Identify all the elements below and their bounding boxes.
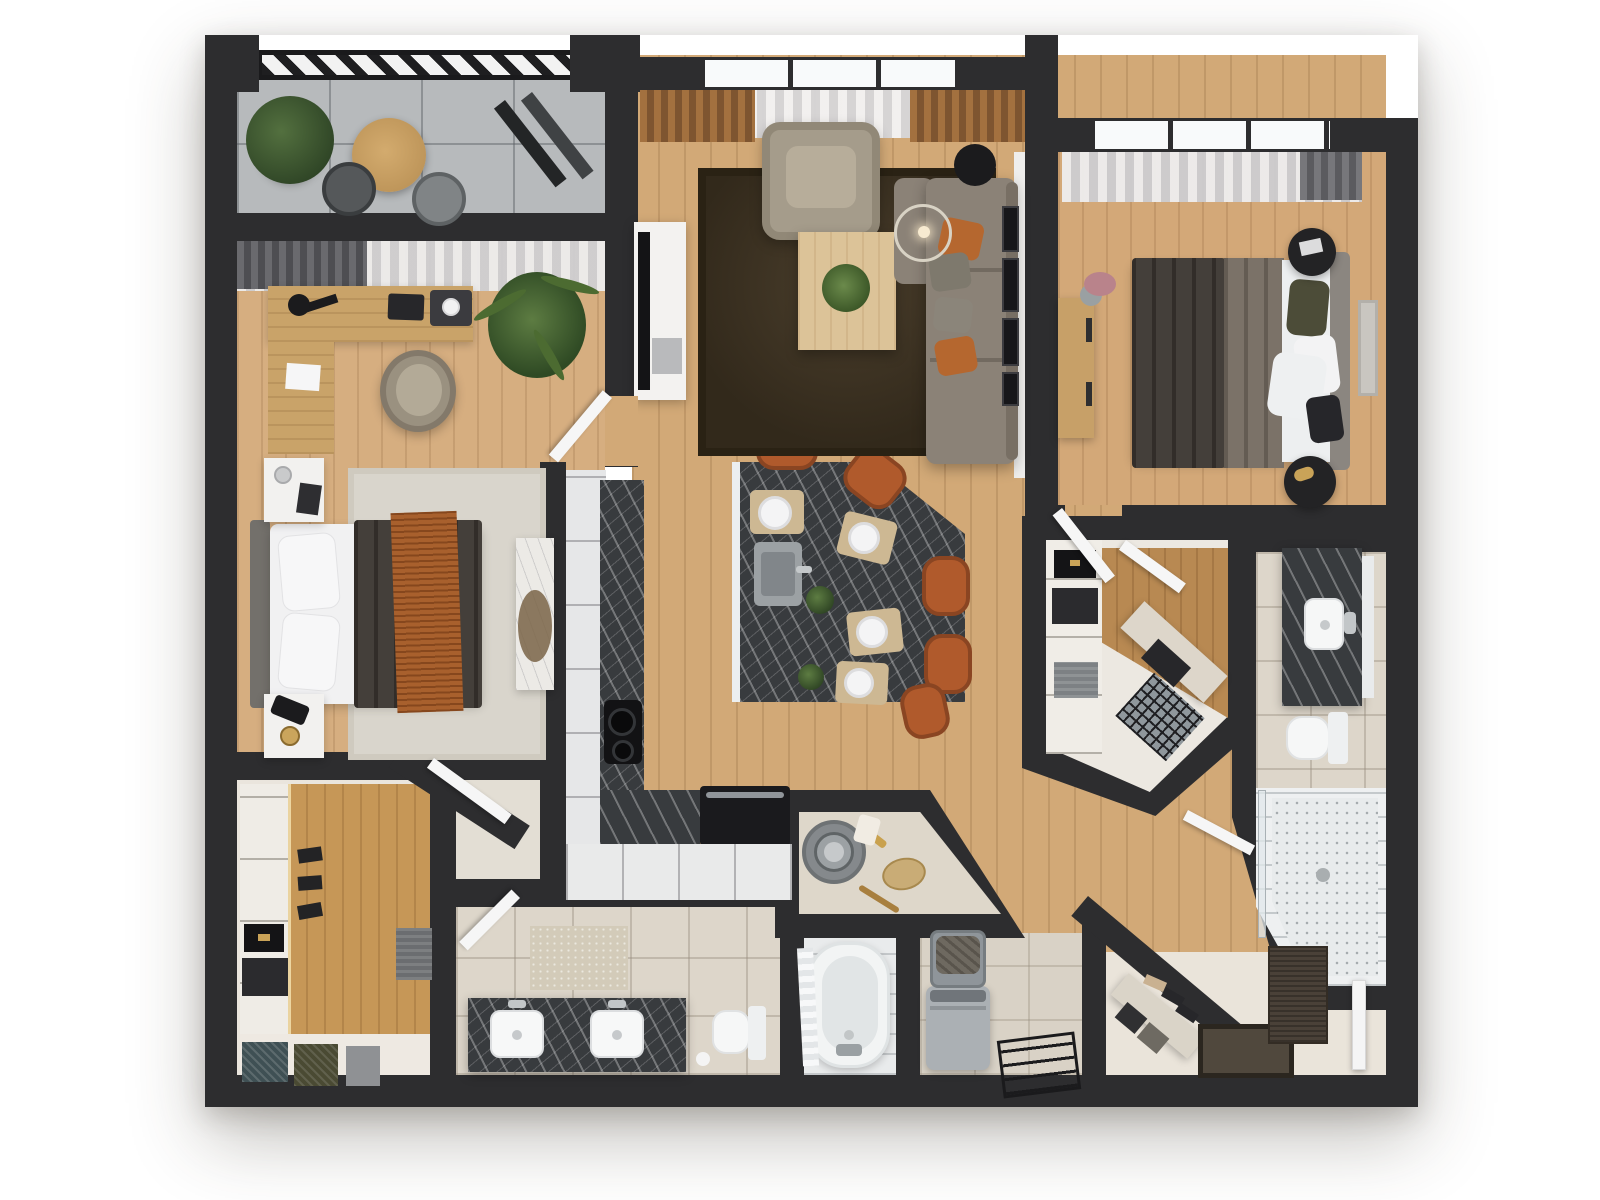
gallery-frame-1 (1002, 206, 1019, 252)
bathtub-drain (844, 1030, 854, 1040)
balcony-railing (257, 50, 577, 80)
bed2-pillow-green (1286, 278, 1331, 337)
nightstand1-a-book (296, 483, 322, 516)
closet2-clothes-gray (346, 1046, 380, 1086)
washer-door-line (930, 1006, 986, 1010)
drying-rack (997, 1031, 1081, 1098)
powder-basin-center (824, 842, 844, 862)
closet2-box-gold-logo (258, 934, 270, 941)
shower-glass-panel (1258, 790, 1266, 938)
bath-toilet-tank (748, 1006, 766, 1060)
island-faucet (796, 566, 812, 573)
washer-control-panel (930, 990, 986, 1002)
dresser-flowers (1084, 272, 1116, 296)
stool-3 (922, 556, 970, 616)
plate-4 (844, 668, 874, 698)
closet2-box-dark (242, 958, 288, 996)
closet2-led-strip (288, 784, 291, 1042)
plate-1 (758, 496, 792, 530)
ensuite-sink-drain (1320, 620, 1330, 630)
dresser-handle-b (1086, 382, 1092, 406)
island-sink-basin (761, 552, 795, 596)
curtain-living-drape-right (910, 90, 1025, 142)
pendant-bulb (918, 226, 930, 238)
entry-door (1352, 980, 1366, 1070)
wall-outer-left (205, 35, 237, 1107)
closet-box-logo (1070, 560, 1080, 566)
closet2-clothes-teal (242, 1042, 288, 1082)
tv-screen (638, 232, 650, 390)
plate-2 (848, 522, 880, 554)
kitchen-counter-bottom (600, 790, 700, 846)
bathtub-faucet (836, 1044, 862, 1056)
wall-tub-right (896, 914, 920, 1075)
wall-outer-bottom (205, 1075, 1418, 1107)
office-chair-cushion (396, 364, 442, 416)
laundry-clothes (936, 936, 980, 974)
nightstand1-b-clock (280, 726, 300, 746)
balcony-plant (246, 96, 334, 184)
wall-living-right (1025, 35, 1058, 535)
appliance-handle (706, 792, 784, 798)
bed2-duvet-dark (1132, 258, 1226, 468)
closet2-shelf-left (240, 784, 288, 1046)
closet-knit-stack (1054, 662, 1098, 698)
curtain-living-drape-left (640, 90, 755, 142)
window-bedroom2 (1090, 121, 1330, 149)
bed2-wall-frame (1358, 300, 1378, 396)
closet2-clothes-olive (294, 1044, 338, 1086)
window-living (700, 60, 955, 87)
wall-closet2-right (430, 780, 456, 1080)
sofa-pillow-orange-2 (933, 335, 979, 377)
desk-cup (442, 298, 460, 316)
plate-3 (856, 616, 888, 648)
bed1-headboard (250, 520, 270, 708)
ensuite-toilet-tank (1328, 712, 1348, 764)
pendant-disc (954, 144, 996, 186)
ensuite-toilet-bowl (1286, 716, 1330, 760)
bench-pampas (518, 590, 552, 662)
kitchen-base-cabinets (566, 844, 792, 900)
desk-lamp-shade (288, 294, 310, 316)
island-greens-2 (798, 664, 824, 690)
bed2-pillow-black (1305, 394, 1345, 444)
tv-media-box (652, 338, 682, 374)
gallery-frame-4 (1002, 372, 1019, 406)
desk-laptop (388, 293, 425, 320)
bed2-nightstand-bottom (1284, 456, 1336, 508)
balcony-chair-left (322, 162, 376, 216)
sofa-pillow-gray-2 (932, 296, 973, 334)
island-greens-1 (806, 586, 834, 614)
bath-sink-right-drain (612, 1030, 622, 1040)
closet2-shoe-2 (298, 875, 323, 891)
bath-sink-left-drain (512, 1030, 522, 1040)
curtain-bedroom1-drape (237, 241, 367, 289)
curtain-bedroom2-drape (1300, 152, 1362, 200)
bath-faucet-right (608, 1000, 626, 1008)
cooktop-burner-a (608, 708, 636, 736)
gallery-frame-3 (1002, 318, 1019, 366)
wall-outer-right (1386, 118, 1418, 1107)
wall-top-left-pillar (205, 35, 259, 92)
entry-runner-rug (1268, 946, 1328, 1044)
bed1-pillow-a (277, 532, 341, 613)
bath-faucet-left (508, 1000, 526, 1008)
bath-mat (530, 926, 628, 990)
cooktop-burner-b (612, 740, 634, 762)
closet-box-dark (1052, 588, 1098, 624)
wall-bedroom2-bottom-a (1122, 505, 1386, 535)
coffee-table-plant (822, 264, 870, 312)
bath-toilet-bowl (712, 1010, 750, 1054)
dresser-handle-a (1086, 318, 1092, 342)
ensuite-faucet (1344, 612, 1356, 634)
door-gap-bedroom1 (605, 396, 638, 466)
floor-plan-canvas (0, 0, 1600, 1200)
closet2-clothes-pile (396, 928, 432, 980)
nightstand1-a-lamp (274, 466, 292, 484)
desk-paper (285, 363, 321, 391)
shower-drain (1316, 868, 1330, 882)
bath-toilet-paper (696, 1052, 710, 1066)
ensuite-mirror-ledge (1362, 556, 1374, 698)
armchair-cushion (786, 146, 856, 208)
balcony-chair-right (412, 172, 466, 226)
bed1-throw (391, 511, 464, 713)
bed1-pillow-b (277, 612, 341, 693)
gallery-frame-2 (1002, 258, 1019, 312)
desk-return (268, 342, 334, 454)
